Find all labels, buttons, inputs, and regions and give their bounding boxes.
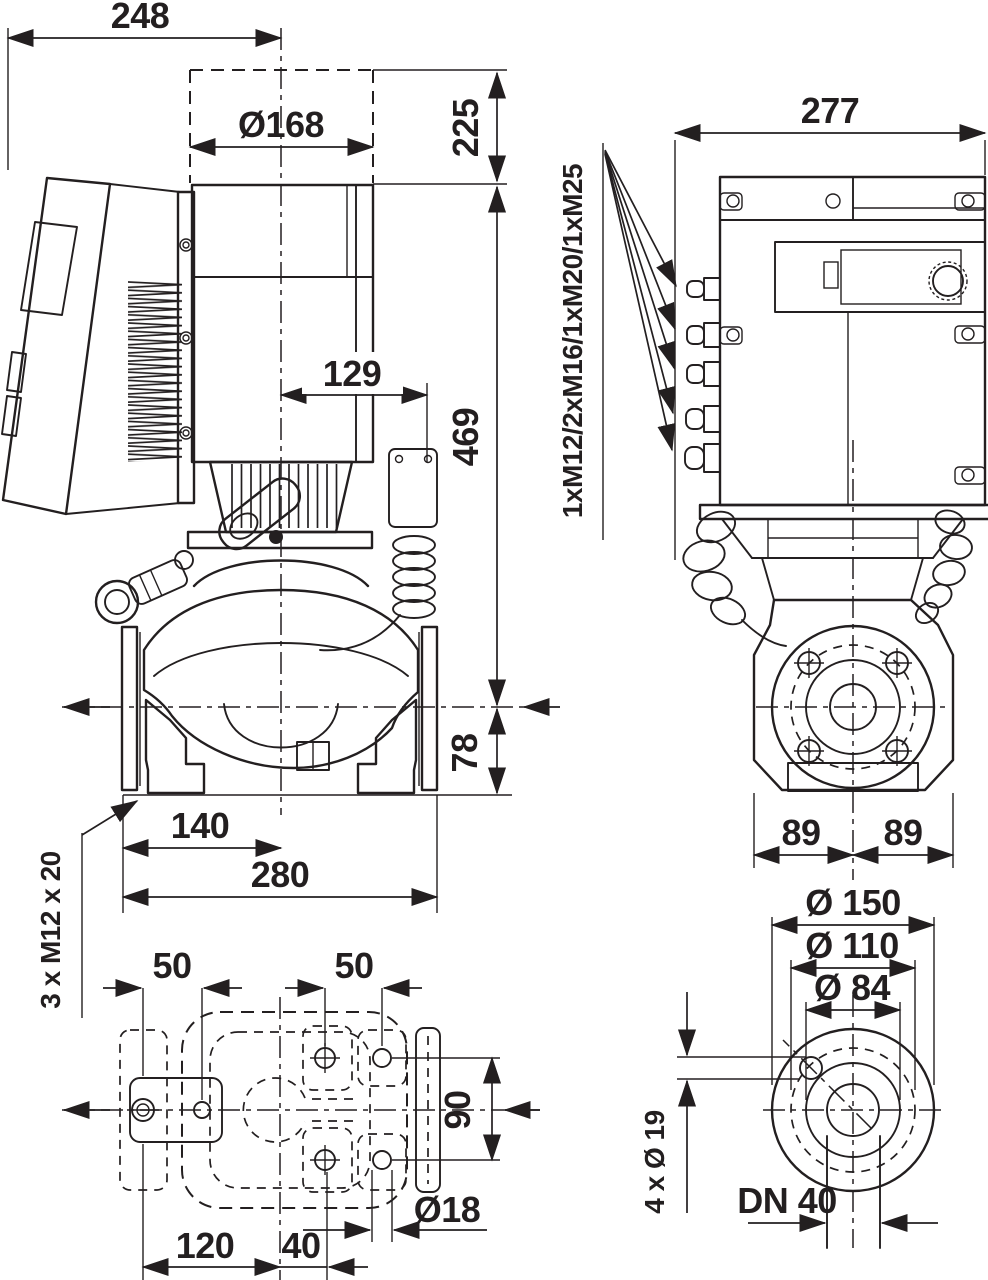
label-cable-glands: 1xM12/2xM16/1xM20/1xM25	[557, 143, 676, 540]
dimension-129: 129	[281, 352, 427, 462]
dim-label-140: 140	[171, 805, 230, 846]
dimension-277: 277	[675, 90, 985, 560]
dim-label-89-right: 89	[883, 812, 922, 853]
plan-view-dimensions: 50 50 90 Ø18 120 40	[103, 945, 500, 1280]
operating-knob	[933, 266, 963, 296]
dim-label-129: 129	[323, 353, 382, 394]
dim-label-50-right: 50	[334, 945, 373, 986]
dimension-90: 90	[392, 1058, 500, 1160]
dim-label-277: 277	[801, 90, 860, 131]
dim-label-110: Ø 110	[805, 925, 899, 966]
dim-label-foot-thread: 3 x M12 x 20	[35, 851, 66, 1008]
dimension-78: 78	[444, 709, 497, 793]
sensor-bracket	[389, 449, 437, 527]
dim-label-50-left: 50	[152, 945, 191, 986]
casing-hidden-outline	[182, 1012, 407, 1208]
foot-pad-hidden	[358, 1134, 406, 1190]
dim-label-84: Ø 84	[814, 967, 891, 1008]
dim-label-280: 280	[251, 854, 310, 895]
dim-label-469: 469	[445, 408, 486, 467]
flange-detail-dimensions: Ø 150 Ø 110 Ø 84 4 x Ø 19 DN 40	[639, 882, 938, 1223]
connector-plugs	[96, 551, 193, 623]
dim-label-cable-glands: 1xM12/2xM16/1xM20/1xM25	[557, 164, 588, 518]
display-panel	[775, 242, 985, 312]
technical-drawing-page: 248 Ø168 225 129 469 78 140 2	[0, 0, 988, 1280]
dim-label-90: 90	[437, 1090, 478, 1129]
discharge-flange	[122, 627, 140, 790]
dim-label-120: 120	[176, 1225, 235, 1266]
label-foot-thread: 3 x M12 x 20	[35, 801, 137, 1018]
dim-label-78: 78	[444, 733, 485, 772]
dim-label-150: Ø 150	[805, 882, 901, 923]
dim-label-40: 40	[281, 1225, 320, 1266]
dim-label-18: Ø18	[414, 1189, 481, 1230]
pump-dimension-drawing: 248 Ø168 225 129 469 78 140 2	[0, 0, 988, 1280]
dim-label-248: 248	[111, 0, 170, 36]
dim-label-225: 225	[445, 98, 486, 157]
dim-label-dn40: DN 40	[737, 1180, 837, 1221]
dimension-dn40: DN 40	[737, 1180, 938, 1223]
dimension-18: Ø18	[303, 1170, 487, 1242]
back-view	[680, 177, 988, 880]
dim-label-89-left: 89	[781, 812, 820, 853]
dim-label-168: Ø168	[238, 104, 324, 145]
dimension-225: 225	[373, 73, 507, 184]
coiled-cable-right	[320, 536, 435, 650]
cable-glands	[685, 278, 720, 472]
dimension-50-left: 50	[103, 945, 242, 1100]
dim-label-bolt-holes: 4 x Ø 19	[639, 1110, 670, 1213]
cooling-fins	[128, 281, 182, 462]
motor-body	[192, 185, 373, 462]
suction-flange	[419, 627, 437, 790]
dimension-469: 469	[445, 187, 497, 705]
